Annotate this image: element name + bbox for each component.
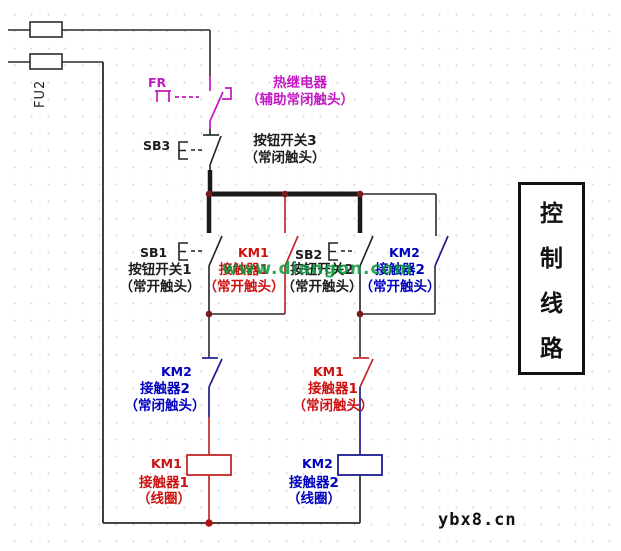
km2-coil-name: 接触器2 xyxy=(272,476,356,492)
km1-nc-ref-label: KM1 xyxy=(313,365,344,379)
fr-ref-label: FR xyxy=(148,76,166,90)
control-circuit-diagram: FU2 FR 热继电器 （辅助常闭触头） SB3 按钮开关3 （常闭触头） SB… xyxy=(0,0,621,551)
km2-nc-desc: （常闭触头） xyxy=(123,399,207,415)
km2-nc-ref-label: KM2 xyxy=(161,365,192,379)
sb3-contact xyxy=(179,129,221,172)
sb1-name: 按钮开关1 xyxy=(118,263,202,279)
km2-no-desc: （常开触头） xyxy=(358,280,442,296)
km1-coil-name: 接触器1 xyxy=(122,476,206,492)
sb1-desc: （常开触头） xyxy=(118,280,202,296)
title-char-1: 控 xyxy=(540,194,563,228)
sb3-desc: （常闭触头） xyxy=(230,151,340,167)
site-watermark: ybx8.cn xyxy=(438,511,517,531)
sb1-ref-label: SB1 xyxy=(140,246,167,260)
km2-coil-desc: （线圈） xyxy=(272,492,356,508)
km1-no-desc: （常开触头） xyxy=(202,280,286,296)
control-circuit-title-box: 控 制 线 路 xyxy=(518,182,585,375)
bus-bar-extension xyxy=(360,194,436,236)
sb2-contact xyxy=(329,196,373,314)
green-watermark: www.diangon.com xyxy=(222,260,413,280)
title-char-3: 线 xyxy=(540,284,563,318)
fuse-label: FU2 xyxy=(34,80,49,108)
km2-coil-ref-label: KM2 xyxy=(302,457,333,471)
thermal-relay-name: 热继电器 xyxy=(258,76,342,92)
sb3-ref-label: SB3 xyxy=(143,139,170,153)
sb2-desc: （常开触头） xyxy=(280,280,364,296)
km1-coil-ref-label: KM1 xyxy=(151,457,182,471)
km2-nc-name: 接触器2 xyxy=(123,382,207,398)
sb3-name: 按钮开关3 xyxy=(230,134,340,150)
sb1-contact xyxy=(179,196,222,314)
km1-coil-desc: （线圈） xyxy=(122,492,206,508)
km1-nc-name: 接触器1 xyxy=(291,382,375,398)
thermal-relay-contact xyxy=(155,76,231,129)
title-char-2: 制 xyxy=(540,239,563,273)
fuse-1-symbol xyxy=(8,22,210,37)
title-char-4: 路 xyxy=(540,329,563,363)
fuse-2-symbol xyxy=(8,54,103,69)
km1-nc-desc: （常闭触头） xyxy=(291,399,375,415)
thermal-relay-desc: （辅助常闭触头） xyxy=(240,93,360,109)
